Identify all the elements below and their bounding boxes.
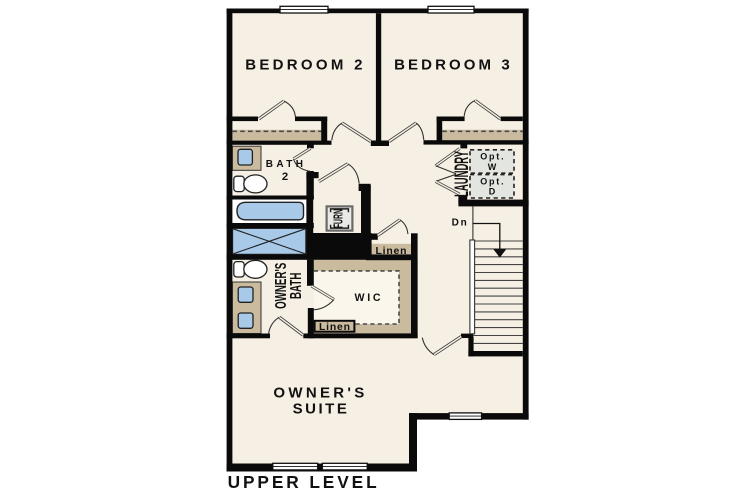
svg-text:Dn: Dn <box>452 218 469 229</box>
svg-text:BATH: BATH <box>266 159 307 170</box>
svg-text:SUITE: SUITE <box>293 400 350 417</box>
svg-text:FURN: FURN <box>333 209 347 228</box>
svg-text:Linen: Linen <box>319 322 351 333</box>
svg-text:Opt.: Opt. <box>480 152 505 162</box>
svg-text:BATH: BATH <box>286 273 304 299</box>
svg-text:2: 2 <box>282 171 288 183</box>
svg-text:W: W <box>488 162 497 172</box>
svg-text:UPPER LEVEL: UPPER LEVEL <box>228 472 380 492</box>
svg-text:D: D <box>489 187 496 197</box>
svg-text:OWNER'S: OWNER'S <box>273 385 367 402</box>
svg-text:Linen: Linen <box>376 246 408 257</box>
svg-text:LAUNDRY: LAUNDRY <box>452 151 474 197</box>
svg-text:WIC: WIC <box>355 292 384 304</box>
svg-text:BEDROOM 2: BEDROOM 2 <box>245 57 366 74</box>
svg-text:Opt.: Opt. <box>480 176 505 186</box>
svg-text:BEDROOM 3: BEDROOM 3 <box>394 57 513 74</box>
